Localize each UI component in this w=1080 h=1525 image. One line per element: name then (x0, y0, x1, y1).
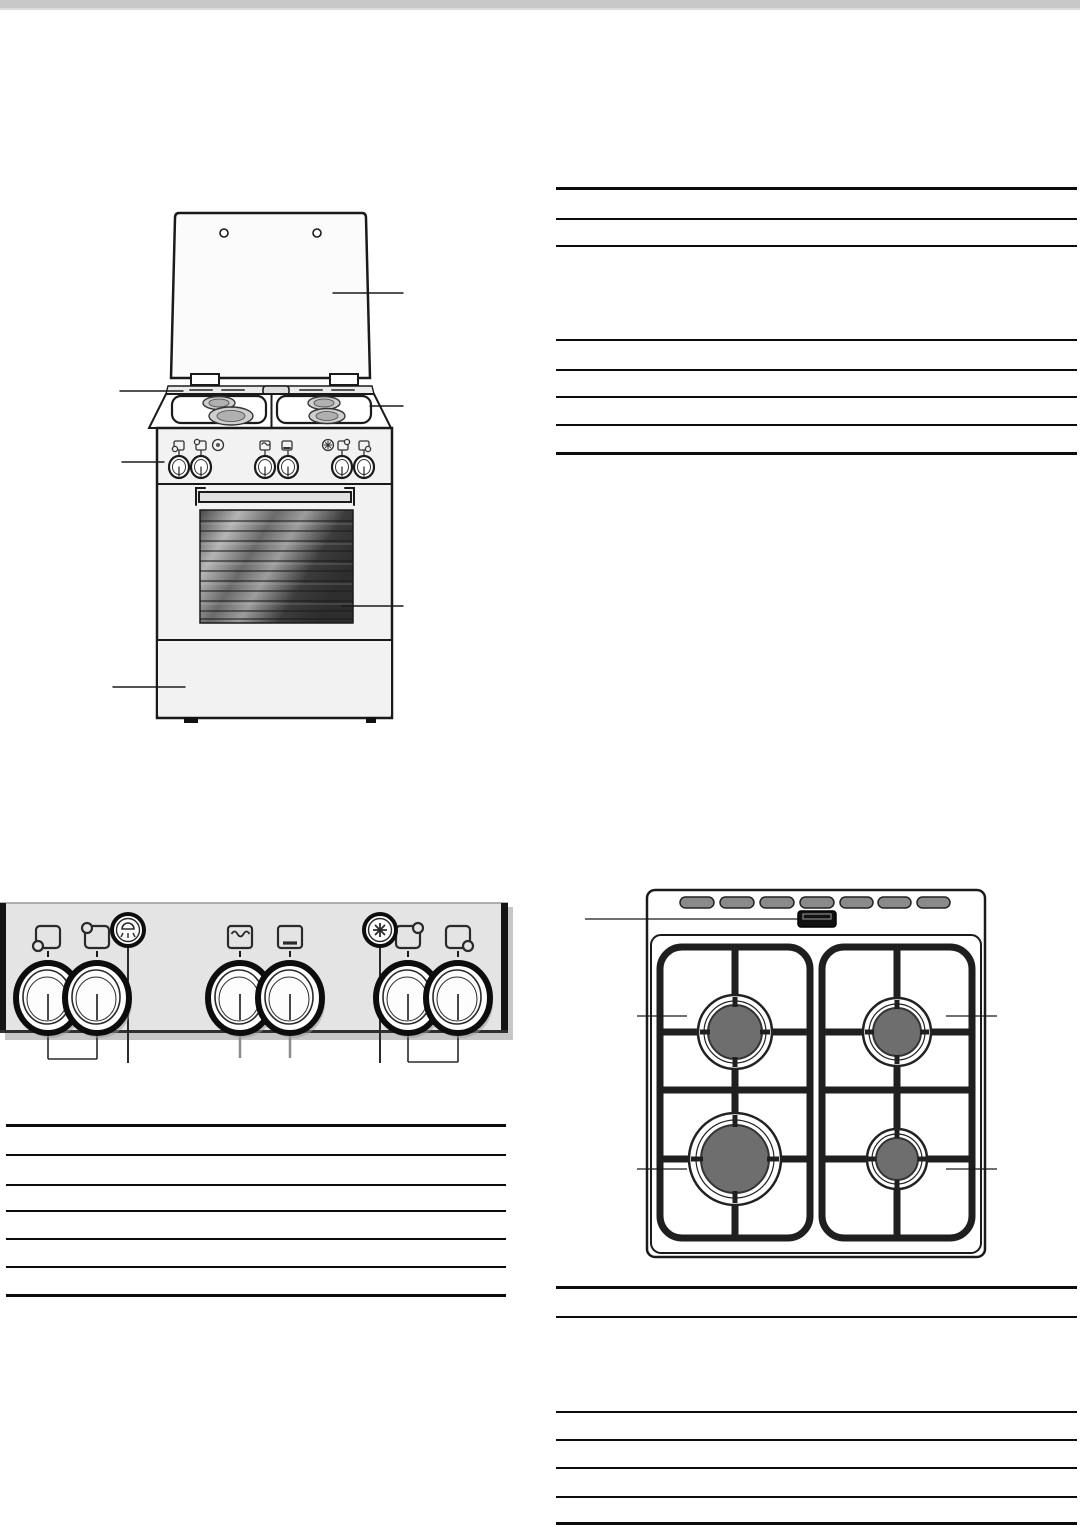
table-left-rule (6, 1294, 506, 1297)
table-top-right-rule (556, 187, 1077, 190)
table-top-right-rule (556, 369, 1077, 371)
table-left-rule (6, 1238, 506, 1240)
table-bottom-right-rule (556, 1411, 1077, 1413)
tables-layer (0, 0, 1080, 1525)
table-top-right-rule (556, 396, 1077, 398)
table-bottom-right-rule (556, 1522, 1077, 1525)
table-top-right-rule (556, 424, 1077, 426)
table-bottom-right-rule (556, 1467, 1077, 1469)
manual-page (0, 0, 1080, 1525)
table-left-rule (6, 1154, 506, 1156)
table-top-right-rule (556, 218, 1077, 220)
table-top-right-rule (556, 339, 1077, 341)
table-bottom-right-rule (556, 1439, 1077, 1441)
table-left-rule (6, 1210, 506, 1212)
table-bottom-right-rule (556, 1316, 1077, 1318)
table-bottom-right-rule (556, 1496, 1077, 1498)
table-bottom-right-rule (556, 1286, 1077, 1289)
table-top-right-rule (556, 245, 1077, 247)
table-left-rule (6, 1184, 506, 1186)
table-left-rule (6, 1124, 506, 1127)
table-top-right-rule (556, 452, 1077, 455)
table-left-rule (6, 1266, 506, 1268)
